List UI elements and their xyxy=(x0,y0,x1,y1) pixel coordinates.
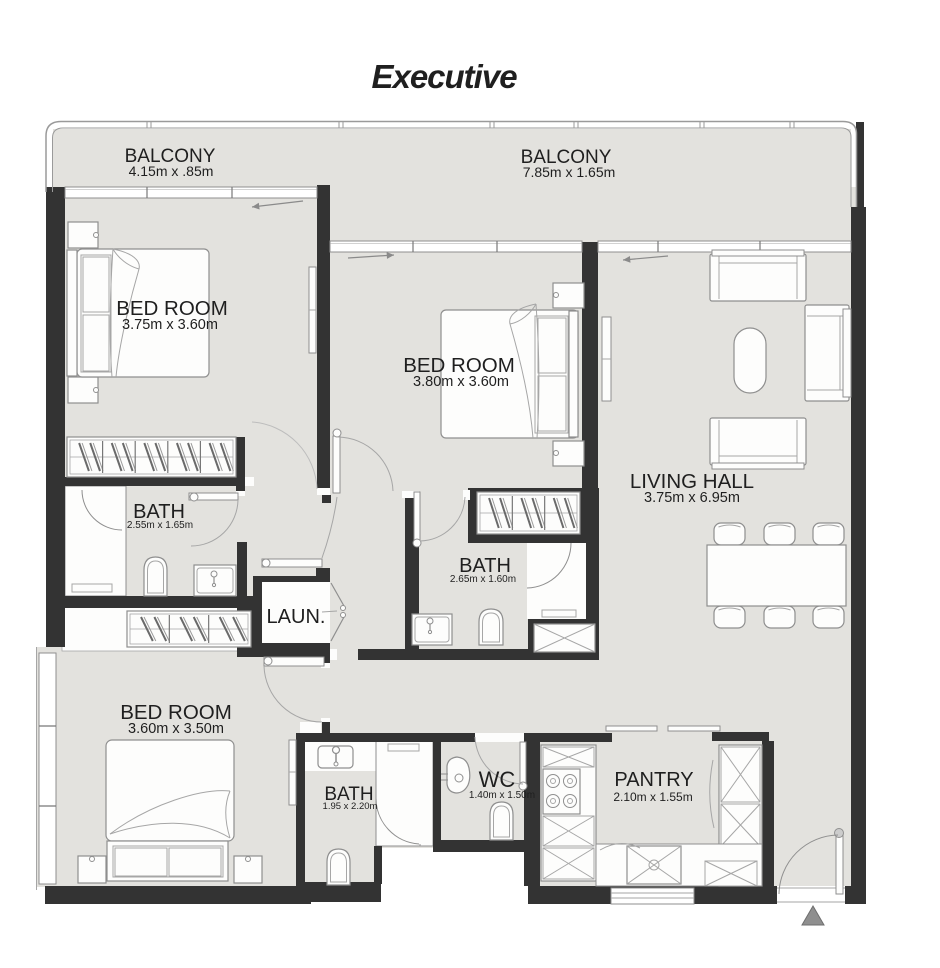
svg-text:PANTRY: PANTRY xyxy=(614,769,693,791)
svg-text:1.95 x 2.20m: 1.95 x 2.20m xyxy=(323,801,378,812)
svg-text:2.65m x 1.60m: 2.65m x 1.60m xyxy=(450,574,516,585)
svg-text:4.15m x .85m: 4.15m x .85m xyxy=(129,163,214,179)
svg-text:3.75m x 6.95m: 3.75m x 6.95m xyxy=(644,490,740,506)
svg-text:3.80m x 3.60m: 3.80m x 3.60m xyxy=(413,374,509,390)
svg-text:7.85m x 1.65m: 7.85m x 1.65m xyxy=(523,164,616,180)
svg-text:1.40m x 1.50m: 1.40m x 1.50m xyxy=(469,790,535,801)
svg-text:LAUN.: LAUN. xyxy=(267,606,326,628)
svg-text:2.10m x 1.55m: 2.10m x 1.55m xyxy=(613,790,692,804)
svg-text:3.75m x 3.60m: 3.75m x 3.60m xyxy=(122,317,218,333)
svg-text:3.60m x 3.50m: 3.60m x 3.50m xyxy=(128,721,224,737)
svg-text:WC: WC xyxy=(479,767,516,792)
svg-text:2.55m x 1.65m: 2.55m x 1.65m xyxy=(127,520,193,531)
svg-text:Executive: Executive xyxy=(371,58,517,95)
